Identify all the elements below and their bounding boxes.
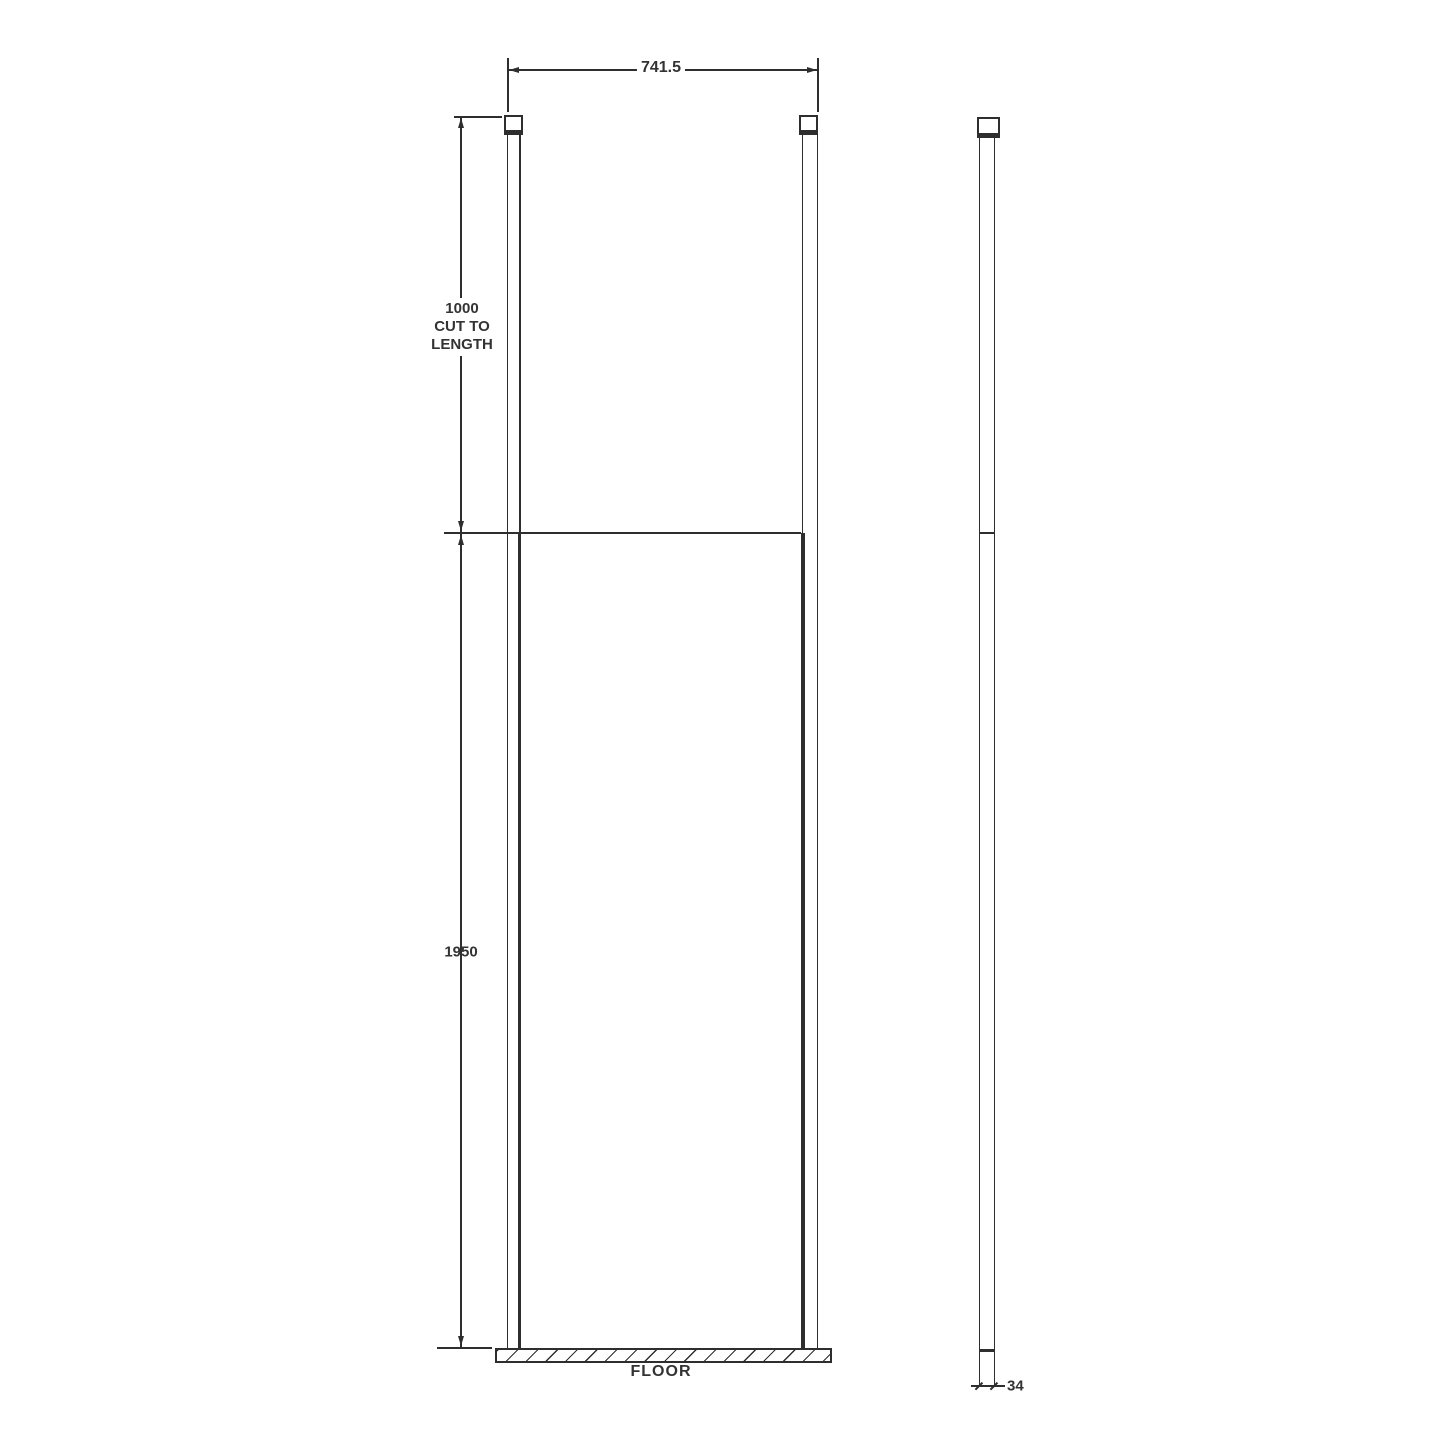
height-dim-tick-bottom [437,1347,492,1349]
post-dim-label-line2: CUT TO [431,318,493,336]
side-floor-level-line [979,1349,994,1352]
width-dim-ext-line-right [817,58,819,112]
depth-dim-label: 34 [1007,1378,1024,1395]
side-glass-top-joint-line [979,532,994,534]
height-dim-arrow-down-bottom-icon [458,1336,464,1346]
panel-dim-label: 1950 [444,944,477,961]
height-dim-arrow-up-middle-icon [458,535,464,545]
height-dim-arrow-down-middle-icon [458,521,464,531]
glass-panel-top-edge [521,532,801,534]
height-dim-tick-middle [444,532,520,534]
left-post-inner-line [519,135,521,533]
right-ceiling-bracket [799,115,818,135]
side-profile-left-line [979,138,981,1385]
glass-panel-right-edge [801,533,805,1349]
glass-panel-left-edge [518,533,522,1349]
width-dim-arrow-right-icon [807,67,817,73]
floor-label: FLOOR [631,1363,692,1381]
post-dim-label-line3: LENGTH [431,336,493,354]
floor-bar [495,1348,832,1363]
side-profile-right-line [994,138,996,1385]
height-dim-arrow-up-top-icon [458,118,464,128]
right-post-outer-line [817,135,819,1349]
left-post-outer-line [507,135,509,1349]
side-ceiling-bracket [977,117,1000,138]
left-ceiling-bracket [504,115,523,135]
technical-drawing: 741.5 1000 CUT TO LENGTH 1950 FL [0,0,1445,1445]
width-dim-label: 741.5 [637,59,685,77]
right-post-inner-line [802,135,804,533]
post-dim-label: 1000 CUT TO LENGTH [428,298,496,356]
width-dim-arrow-left-icon [509,67,519,73]
post-dim-label-line1: 1000 [431,300,493,318]
